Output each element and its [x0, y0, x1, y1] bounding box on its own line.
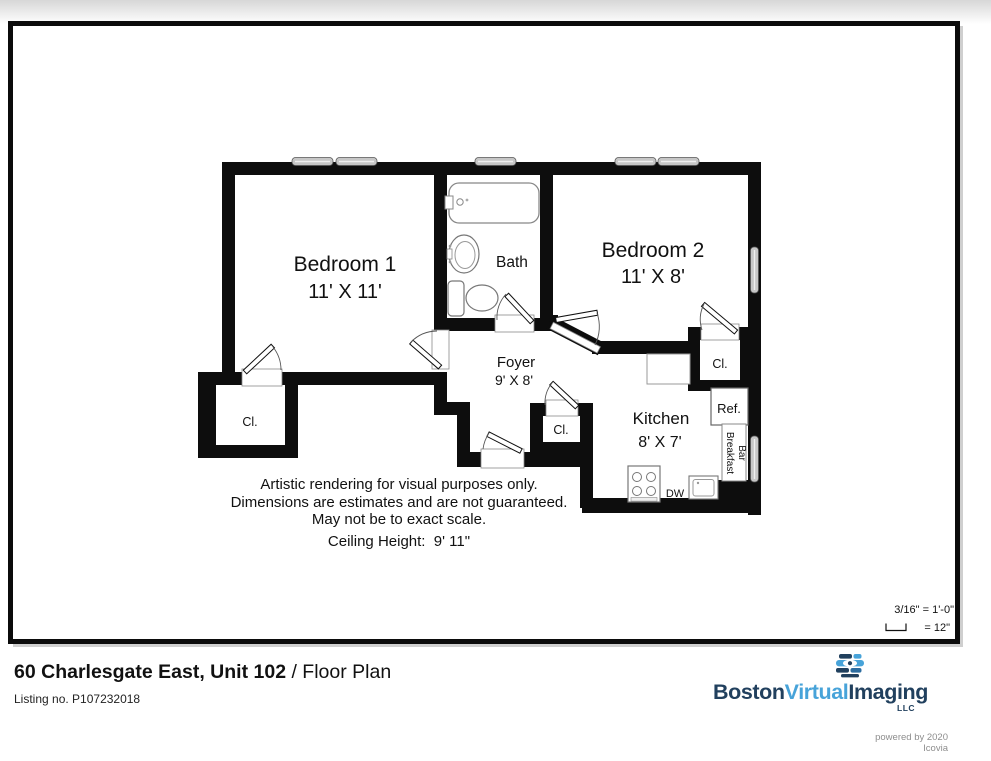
wall [540, 175, 553, 325]
floor-plan-canvas: Bedroom 1 11' X 11' Bath Bedroom 2 11' X… [0, 0, 991, 761]
bedroom-1-label: Bedroom 1 [294, 253, 397, 276]
page-frame [11, 24, 958, 642]
disclaimer-line-1: Artistic rendering for visual purposes o… [260, 476, 537, 493]
closet-label-foyer: Cl. [553, 423, 568, 437]
bedroom-1-dims: 11' X 11' [308, 281, 382, 303]
listing-number: Listing no. P107232018 [14, 692, 140, 706]
counter [647, 354, 690, 384]
breakfast-bar-label-line2: Bar [736, 445, 747, 461]
wall [285, 372, 447, 385]
wall [718, 480, 748, 500]
wall [222, 162, 235, 385]
tub-faucet-icon [445, 196, 453, 209]
powered-by-note: powered by 2020 Icovia [848, 732, 948, 754]
kitchen-dims: 8' X 7' [638, 434, 681, 451]
dishwasher-label: DW [666, 488, 685, 500]
foyer-label: Foyer [497, 354, 535, 371]
brand-word-virtual: Virtual [785, 680, 849, 704]
boston-virtual-imaging-logo-icon [833, 653, 867, 679]
foyer-dims: 9' X 8' [495, 372, 533, 388]
stove-icon [628, 466, 660, 502]
scale-note-line2: = 12" [924, 622, 950, 634]
wall [457, 415, 470, 455]
scale-note-line1: 3/16" = 1'-0" [894, 604, 954, 616]
ceiling-height-note: Ceiling Height: 9' 11" [328, 533, 470, 550]
wall [592, 341, 692, 354]
brand-word-imaging: Imaging [848, 680, 928, 704]
closet-label-bedroom1: Cl. [242, 415, 257, 429]
brand-wordmark: BostonVirtualImaging [713, 680, 928, 705]
page-title-main: 60 Charlesgate East, Unit 102 [14, 661, 286, 683]
disclaimer-line-3: May not be to exact scale. [312, 511, 486, 528]
brand-word-boston: Boston [713, 680, 785, 704]
wall [457, 452, 593, 467]
kitchen-label: Kitchen [633, 409, 690, 428]
bath-label: Bath [496, 254, 528, 271]
closet-label-bedroom2: Cl. [712, 357, 727, 371]
wall [582, 498, 761, 513]
wall [434, 402, 470, 415]
brand-llc: LLC [897, 703, 915, 713]
disclaimer-line-2: Dimensions are estimates and are not gua… [231, 494, 568, 511]
page-title: 60 Charlesgate East, Unit 102 / Floor Pl… [14, 661, 391, 684]
tub-knob-icon [466, 199, 469, 202]
stove-controls-icon [631, 498, 657, 502]
sink-faucet-icon [447, 249, 452, 259]
tub-drain-icon [457, 199, 463, 205]
breakfast-bar-label-line1: Breakfast [724, 432, 735, 474]
page-title-suffix: / Floor Plan [286, 661, 391, 683]
bedroom-2-label: Bedroom 2 [602, 239, 705, 262]
toilet-tank-icon [448, 281, 464, 316]
bedroom-2-dims: 11' X 8' [621, 266, 685, 288]
toilet-icon [466, 285, 498, 311]
refrigerator-label: Ref. [717, 401, 741, 416]
page-top-tint [0, 0, 991, 24]
